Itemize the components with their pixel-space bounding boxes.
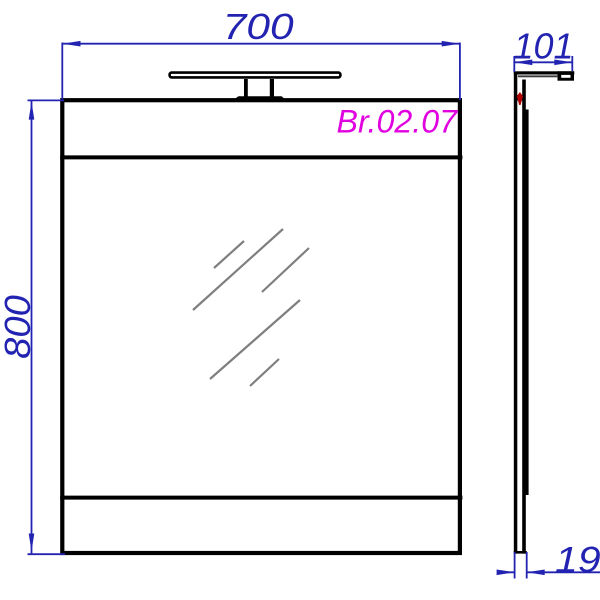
svg-text:800: 800	[0, 295, 38, 359]
svg-text:19: 19	[555, 540, 600, 580]
svg-text:Br.02.07: Br.02.07	[337, 103, 459, 139]
svg-text:700: 700	[223, 7, 294, 47]
svg-text:101: 101	[513, 26, 573, 67]
